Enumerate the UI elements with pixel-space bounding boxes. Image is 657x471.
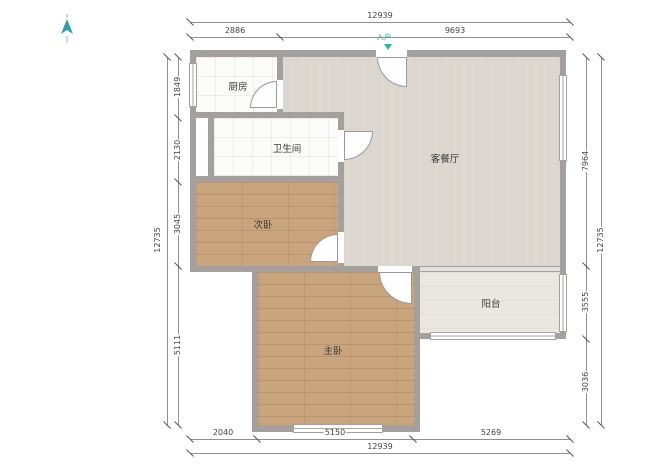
kitchen-label: 厨房 bbox=[228, 79, 247, 93]
kitchen-door-gap bbox=[277, 80, 283, 109]
entry-door-gap bbox=[376, 50, 407, 57]
dim-left-overall-line bbox=[167, 57, 168, 425]
dim-bottom-overall-line bbox=[190, 453, 570, 454]
balcony-label: 阳台 bbox=[481, 296, 500, 310]
floor-plan: 入户 厨房 卫生间 次卧 客餐厅 主卧 阳台 12939 2886 9693 2… bbox=[0, 0, 657, 471]
balcony-sliding-door bbox=[420, 266, 560, 272]
wall-bathroom-left bbox=[208, 118, 214, 182]
dim-left-segments-line bbox=[178, 57, 179, 425]
north-arrow-icon bbox=[54, 12, 80, 48]
dim-bottom-seg-0: 2040 bbox=[212, 429, 234, 437]
bedroom2-door-gap bbox=[338, 232, 344, 263]
dim-right-overall: 12735 bbox=[597, 226, 605, 253]
dim-right-seg-1: 3555 bbox=[582, 291, 590, 313]
dim-top-seg-1: 9693 bbox=[444, 27, 466, 35]
dim-right-seg-0: 7964 bbox=[582, 150, 590, 172]
bathroom-label: 卫生间 bbox=[273, 141, 302, 155]
wall-master-right bbox=[414, 266, 420, 432]
living-room-window bbox=[559, 75, 567, 161]
balcony-window bbox=[430, 332, 556, 340]
living-room-label: 客餐厅 bbox=[431, 151, 460, 165]
dim-left-overall: 12735 bbox=[154, 226, 162, 253]
dim-left-seg-0: 1849 bbox=[174, 76, 182, 98]
balcony-side-window bbox=[559, 274, 567, 332]
dim-top-segments-line bbox=[190, 37, 570, 38]
dim-bottom-seg-1: 5150 bbox=[324, 429, 346, 437]
bedroom2-label: 次卧 bbox=[253, 217, 272, 231]
entry-arrow-icon bbox=[384, 44, 392, 50]
dim-top-overall-line bbox=[190, 22, 570, 23]
master-bedroom-label: 主卧 bbox=[323, 343, 342, 357]
dim-top-overall: 12939 bbox=[366, 12, 393, 20]
dim-right-segments-line bbox=[586, 57, 587, 425]
wall-bedroom2-bottom bbox=[190, 266, 344, 272]
dim-bottom-overall: 12939 bbox=[366, 443, 393, 451]
dim-top-seg-0: 2886 bbox=[224, 27, 246, 35]
dim-bottom-seg-2: 5269 bbox=[480, 429, 502, 437]
dim-left-seg-2: 3045 bbox=[174, 213, 182, 235]
dim-right-seg-2: 3036 bbox=[582, 371, 590, 393]
dim-left-seg-3: 5111 bbox=[174, 334, 182, 356]
kitchen-window bbox=[189, 63, 197, 107]
wall-master-left bbox=[252, 266, 258, 432]
dim-bottom-segments-line bbox=[190, 439, 570, 440]
dim-left-seg-1: 2130 bbox=[174, 139, 182, 161]
wall-bedroom2-top bbox=[190, 176, 344, 182]
